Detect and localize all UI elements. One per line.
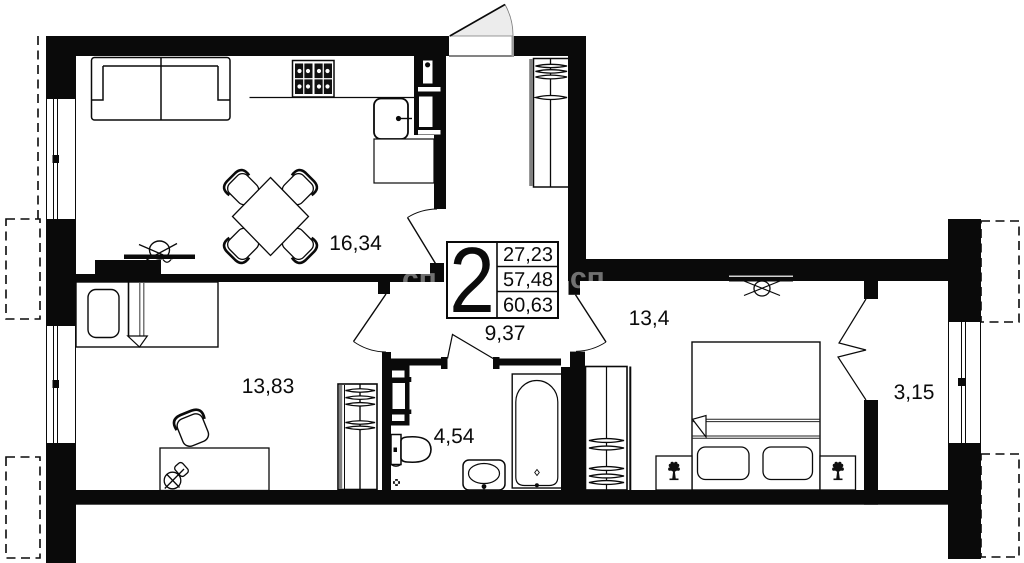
- svg-text:16,34: 16,34: [329, 232, 382, 255]
- svg-text:9,37: 9,37: [485, 322, 526, 345]
- svg-text:57,48: 57,48: [503, 269, 553, 291]
- svg-text:60,63: 60,63: [503, 295, 553, 317]
- svg-text:13,83: 13,83: [242, 375, 295, 398]
- svg-text:4,54: 4,54: [434, 425, 475, 448]
- svg-text:13,4: 13,4: [629, 307, 670, 330]
- svg-text:3,15: 3,15: [894, 381, 935, 404]
- svg-text:сп: сп: [402, 263, 437, 296]
- svg-text:27,23: 27,23: [503, 244, 553, 266]
- svg-text:сп: сп: [570, 262, 605, 295]
- svg-text:2: 2: [449, 228, 495, 332]
